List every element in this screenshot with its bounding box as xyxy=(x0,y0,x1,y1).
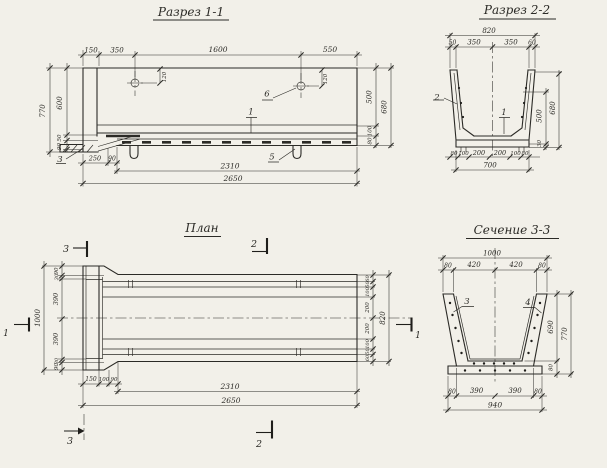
dim-80: 80 xyxy=(534,389,542,396)
section-marker-1-left xyxy=(14,318,30,332)
dim-200: 200 xyxy=(365,302,371,314)
view-title-section-3-3: Сечение 3-3 xyxy=(474,223,551,237)
part-label-1: 1 xyxy=(248,108,253,118)
leader-lines xyxy=(433,98,510,134)
dim-80: 80 xyxy=(368,137,374,144)
dim-1000: 1000 xyxy=(34,309,42,327)
dim-100: 100 xyxy=(510,151,521,157)
dim-200: 200 xyxy=(472,149,485,157)
part-label-1: 1 xyxy=(501,108,506,118)
marker-label-1-right: 1 xyxy=(415,331,421,341)
dim-770: 770 xyxy=(39,104,47,118)
dim-90: 90 xyxy=(54,267,60,274)
dim-350: 350 xyxy=(504,39,518,47)
dim-60: 60 xyxy=(365,354,371,361)
dim-50: 50 xyxy=(449,40,457,47)
marker-label-2-top: 2 xyxy=(250,239,257,250)
section-marker-3-bottom xyxy=(64,428,85,435)
dim-80: 80 xyxy=(444,263,452,270)
marker-label-1-left: 1 xyxy=(3,329,9,339)
part-label-6: 6 xyxy=(264,90,270,100)
dim-390: 390 xyxy=(52,293,60,305)
dim-350: 350 xyxy=(110,47,124,55)
dim-80: 80 xyxy=(451,151,458,157)
part-label-5: 5 xyxy=(269,153,274,163)
dim-90: 90 xyxy=(57,143,63,150)
plan-view: План 1000 90 30 390 390 30 90 60 50 100 … xyxy=(3,221,421,450)
view-title-section-1-1: Разрез 1-1 xyxy=(157,5,224,19)
drawing-sheet: Разрез 1-1 150 350 1600 550 120 120 770 … xyxy=(0,0,607,468)
dim-1000: 1000 xyxy=(483,250,501,258)
dim-420: 420 xyxy=(466,261,481,269)
part-label-4: 4 xyxy=(524,298,530,308)
dim-80: 80 xyxy=(448,389,456,396)
dim-820: 820 xyxy=(379,311,387,325)
dim-940: 940 xyxy=(488,401,503,410)
section-marker-1-right xyxy=(396,318,412,332)
dim-820: 820 xyxy=(482,27,496,35)
dim-600: 600 xyxy=(56,96,64,110)
dim-80: 80 xyxy=(538,263,546,270)
dim-680: 680 xyxy=(549,101,557,115)
dim-100: 100 xyxy=(365,338,371,348)
engineering-drawing: Разрез 1-1 150 350 1600 550 120 120 770 … xyxy=(0,0,607,468)
dim-700: 700 xyxy=(483,162,497,170)
view-title-section-2-2: Разрез 2-2 xyxy=(483,3,550,17)
section-2-2-view: Разрез 2-2 820 50 350 350 60 500 680 30 … xyxy=(433,3,562,173)
dim-2310: 2310 xyxy=(219,162,239,171)
part-label-3: 3 xyxy=(464,297,469,307)
dim-770: 770 xyxy=(561,327,569,341)
dim-100: 100 xyxy=(365,286,371,296)
marker-label-2-bottom: 2 xyxy=(255,439,262,450)
dim-30: 30 xyxy=(537,140,543,147)
section-marker-2-bottom xyxy=(256,421,272,439)
dim-350: 350 xyxy=(467,39,481,47)
dim-80-slab: 80 xyxy=(549,364,555,371)
dim-500: 500 xyxy=(366,90,374,104)
dim-2650: 2650 xyxy=(220,396,240,405)
dim-60: 60 xyxy=(528,40,536,47)
section-1-1-view: Разрез 1-1 150 350 1600 550 120 120 770 … xyxy=(39,5,394,187)
dim-1600: 1600 xyxy=(208,45,227,54)
dim-90: 90 xyxy=(54,363,60,370)
dim-150: 150 xyxy=(85,376,97,383)
dim-200: 200 xyxy=(365,323,371,335)
section-3-3-view: Сечение 3-3 1000 80 420 420 80 690 80 77… xyxy=(438,223,574,413)
dim-90: 90 xyxy=(111,377,118,383)
dim-50: 50 xyxy=(57,134,63,141)
dim-2310: 2310 xyxy=(219,382,239,391)
dim-250: 250 xyxy=(88,155,101,163)
dim-390: 390 xyxy=(508,387,522,395)
dim-420: 420 xyxy=(508,261,523,269)
dim-690: 690 xyxy=(547,320,555,334)
section-marker-3-top xyxy=(73,241,87,257)
dim-500: 500 xyxy=(536,109,544,123)
dim-2650: 2650 xyxy=(222,174,242,183)
marker-label-3-bottom: 3 xyxy=(67,436,73,447)
dim-390: 390 xyxy=(470,387,484,395)
part-label-2: 2 xyxy=(433,93,439,103)
dim-390: 390 xyxy=(52,333,60,345)
dim-100: 100 xyxy=(368,125,374,136)
dim-550: 550 xyxy=(323,45,338,54)
dim-hole-120: 120 xyxy=(323,73,329,84)
dim-150: 150 xyxy=(84,47,98,55)
dim-50: 50 xyxy=(365,348,371,355)
part-label-3: 3 xyxy=(57,155,62,165)
dim-80: 80 xyxy=(522,151,529,157)
dim-680: 680 xyxy=(381,100,389,114)
dim-50: 50 xyxy=(365,281,371,288)
dim-100: 100 xyxy=(99,377,110,383)
dim-30: 30 xyxy=(54,273,60,280)
dim-200: 200 xyxy=(493,149,506,157)
dim-hole-120: 120 xyxy=(162,71,168,82)
dim-100: 100 xyxy=(458,151,469,157)
marker-label-3-top: 3 xyxy=(63,244,69,255)
dim-60: 60 xyxy=(365,275,371,282)
view-title-plan: План xyxy=(184,221,218,235)
dim-90-bottom: 90 xyxy=(108,156,116,163)
